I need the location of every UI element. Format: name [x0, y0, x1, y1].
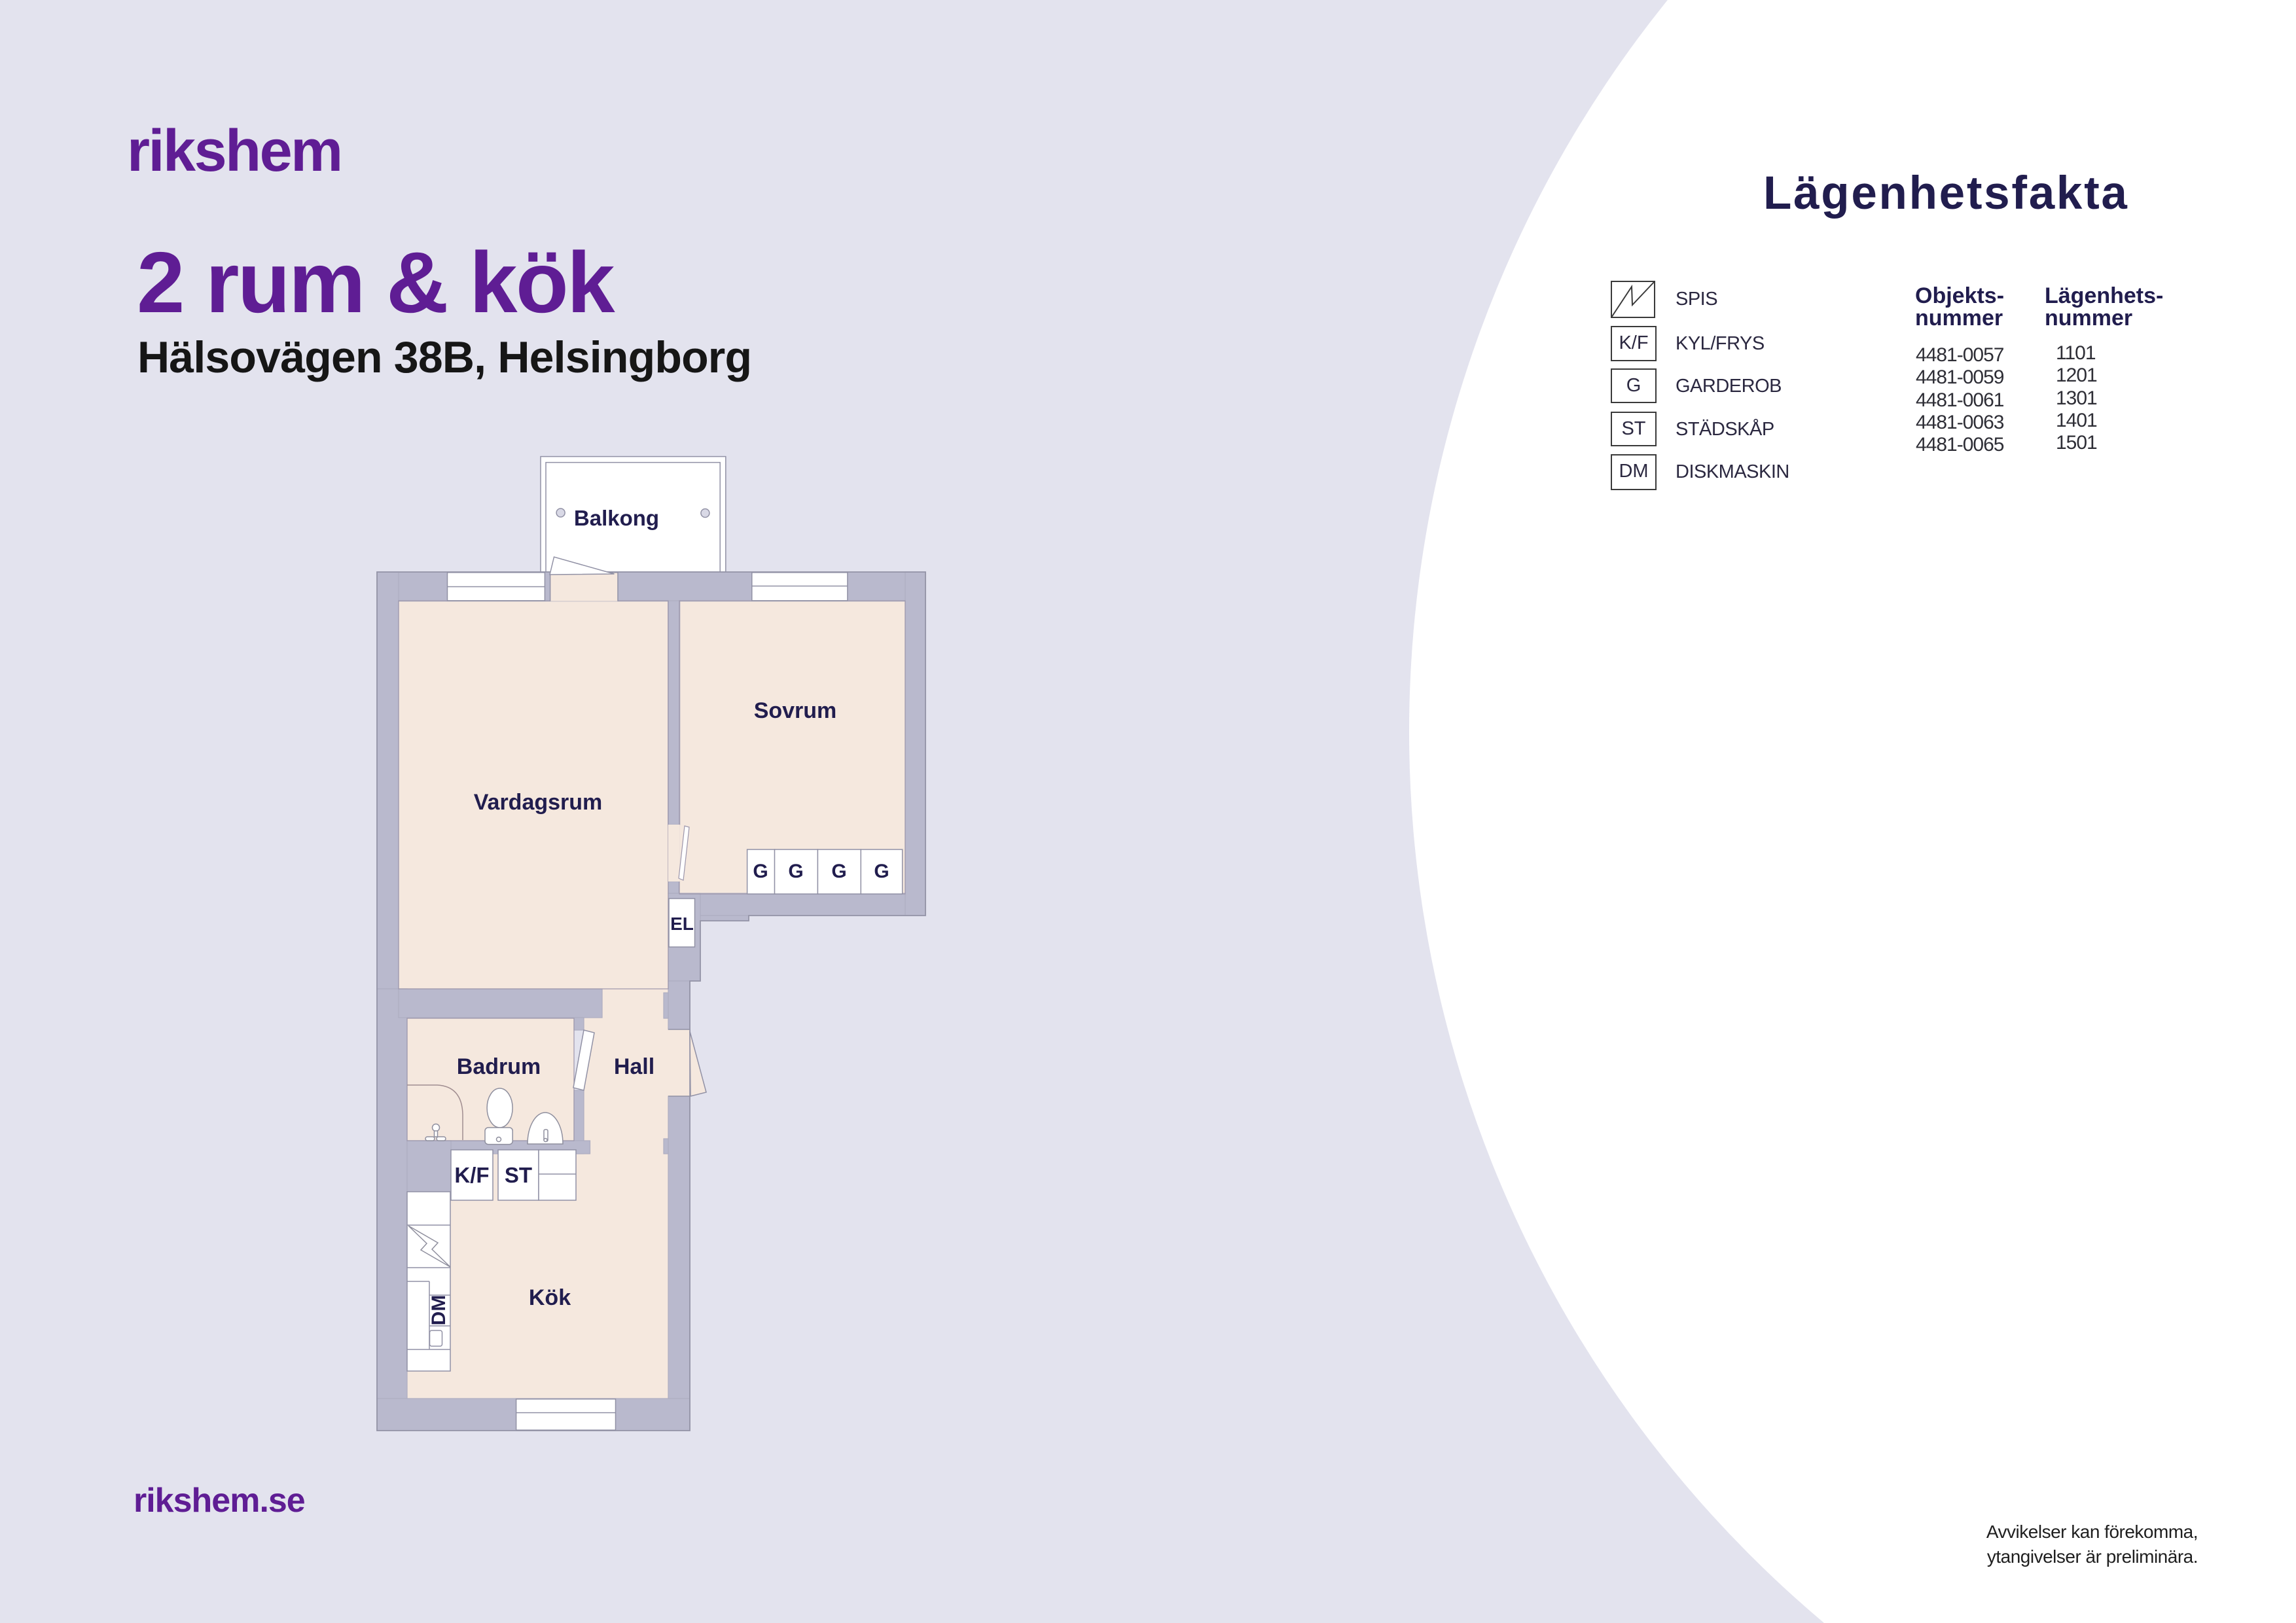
svg-text:Balkong: Balkong [574, 506, 659, 530]
svg-text:DM: DM [428, 1295, 450, 1326]
svg-text:G: G [788, 861, 803, 882]
svg-text:Sovrum: Sovrum [754, 698, 837, 723]
svg-text:G: G [874, 861, 889, 882]
svg-text:Kök: Kök [529, 1285, 571, 1310]
svg-text:G: G [831, 861, 846, 882]
svg-text:EL: EL [670, 914, 694, 934]
svg-text:ST: ST [505, 1163, 532, 1187]
svg-text:Badrum: Badrum [457, 1054, 541, 1079]
svg-text:Vardagsrum: Vardagsrum [474, 790, 603, 815]
svg-text:K/F: K/F [454, 1163, 489, 1187]
svg-text:Hall: Hall [614, 1054, 655, 1079]
svg-text:G: G [753, 861, 768, 882]
